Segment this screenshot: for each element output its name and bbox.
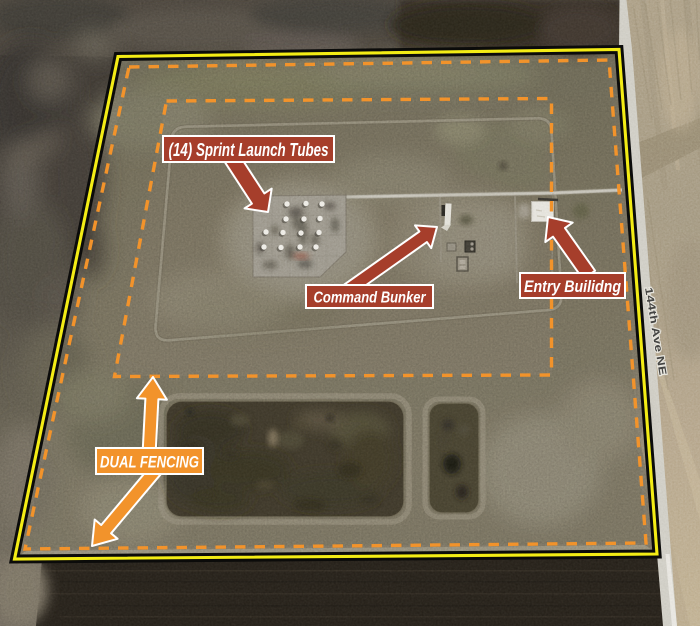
svg-text:(14) Sprint Launch Tubes: (14) Sprint Launch Tubes: [169, 140, 329, 160]
svg-text:DUAL FENCING: DUAL FENCING: [100, 454, 199, 472]
svg-text:Command Bunker: Command Bunker: [314, 290, 427, 307]
svg-text:Entry Builidng: Entry Builidng: [524, 278, 621, 296]
